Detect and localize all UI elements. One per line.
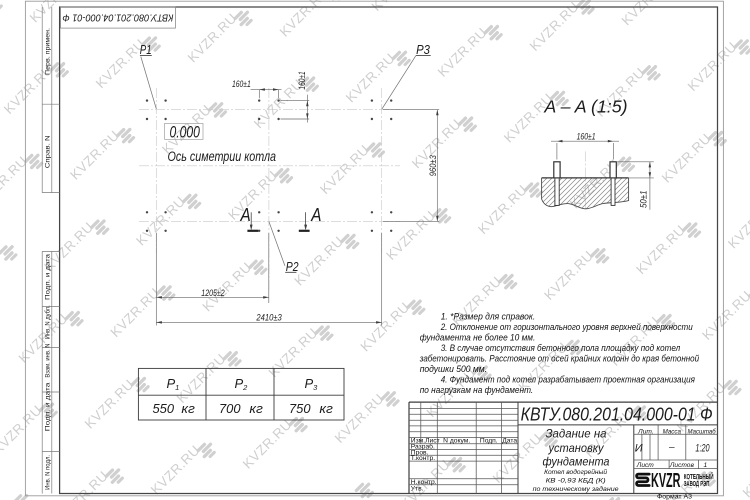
svg-text:3. В случае отсутствия бетонно: 3. В случае отсутствия бетонного пола пл… [441, 343, 681, 353]
svg-text:Ось симетрии котла: Ось симетрии котла [168, 148, 277, 164]
svg-text:A: A [310, 204, 321, 225]
svg-text:1:20: 1:20 [695, 442, 710, 454]
svg-text:Котел водогрейный: Котел водогрейный [544, 468, 607, 476]
svg-text:1: 1 [703, 462, 707, 469]
svg-text:960±3: 960±3 [428, 155, 438, 176]
svg-text:A – A (1:5): A – A (1:5) [543, 96, 627, 116]
svg-text:Подп.: Подп. [480, 438, 498, 445]
svg-text:Справ. N: Справ. N [45, 135, 52, 168]
svg-text:КОТЕЛЬНЫЙ: КОТЕЛЬНЫЙ [684, 472, 714, 481]
svg-text:P3: P3 [416, 42, 430, 57]
svg-text:160±1: 160±1 [297, 71, 307, 89]
svg-text:–: – [668, 442, 675, 453]
svg-text:подушки 500 мм.: подушки 500 мм. [420, 364, 487, 374]
svg-text:забетонировать. Расстояние от: забетонировать. Расстояние от осей крайн… [419, 354, 699, 364]
svg-text:Подп. и дата: Подп. и дата [45, 382, 52, 431]
svg-text:KVZR: KVZR [651, 470, 681, 492]
svg-text:Масштаб: Масштаб [688, 427, 716, 435]
svg-text:750: 750 [289, 401, 311, 416]
svg-text:1205±2: 1205±2 [201, 288, 224, 298]
svg-text:кг: кг [249, 401, 263, 416]
svg-text:И: И [635, 442, 643, 454]
svg-text:фундамента не более 10 мм.: фундамента не более 10 мм. [420, 333, 536, 343]
svg-text:Лист: Лист [636, 462, 654, 469]
svg-text:1. *Размер для справок.: 1. *Размер для справок. [441, 312, 536, 322]
svg-text:P2: P2 [286, 259, 299, 274]
svg-text:2410±3: 2410±3 [256, 313, 282, 323]
svg-text:160±1: 160±1 [577, 131, 596, 141]
svg-text:КВ -0,93 КБД (К): КВ -0,93 КБД (К) [546, 478, 606, 485]
svg-text:Инв. N подл.: Инв. N подл. [45, 455, 52, 490]
svg-text:Лит.: Лит. [637, 428, 654, 435]
svg-text:КВТУ.080.201.04.000-01 Ф: КВТУ.080.201.04.000-01 Ф [521, 405, 713, 425]
svg-text:Дата: Дата [502, 438, 517, 445]
svg-text:50±1: 50±1 [639, 190, 649, 208]
svg-text:160±1: 160±1 [232, 79, 251, 89]
svg-text:Взам. инв. N: Взам. инв. N [45, 344, 52, 378]
svg-text:ЗАВОД РЭП: ЗАВОД РЭП [684, 481, 710, 488]
svg-text:кг: кг [319, 401, 333, 416]
svg-text:Подп. и дата: Подп. и дата [45, 254, 52, 300]
svg-text:Масса: Масса [663, 428, 682, 435]
svg-text:КВТУ.080.201.04.000-01 Ф: КВТУ.080.201.04.000-01 Ф [62, 11, 173, 22]
svg-text:Формат А3: Формат А3 [657, 493, 692, 500]
svg-text:550: 550 [153, 401, 175, 416]
svg-text:0.000: 0.000 [170, 124, 201, 142]
svg-text:P1: P1 [140, 42, 152, 57]
svg-text:N докум.: N докум. [443, 438, 470, 445]
svg-text:установку: установку [548, 441, 605, 455]
svg-text:по нагрузкам на фундамент.: по нагрузкам на фундамент. [420, 385, 534, 395]
svg-text:кг: кг [181, 401, 195, 416]
svg-text:Инв. N дубл.: Инв. N дубл. [44, 305, 52, 339]
svg-text:Т.контр.: Т.контр. [411, 455, 435, 462]
svg-text:Задание на: Задание на [546, 426, 607, 440]
svg-text:4. Фундамент под котел разраба: 4. Фундамент под котел разрабатывает про… [441, 375, 695, 385]
svg-text:по техническому задание: по техническому задание [533, 485, 619, 493]
svg-text:A: A [240, 204, 251, 225]
svg-text:Утв.: Утв. [411, 486, 424, 493]
svg-text:2. Отклонение от горизонтально: 2. Отклонение от горизонтального уровня … [440, 322, 693, 332]
svg-text:Листов: Листов [669, 462, 695, 469]
svg-text:фундамента: фундамента [543, 454, 610, 468]
svg-text:Перв. примен.: Перв. примен. [45, 28, 52, 75]
svg-text:700: 700 [219, 401, 241, 416]
